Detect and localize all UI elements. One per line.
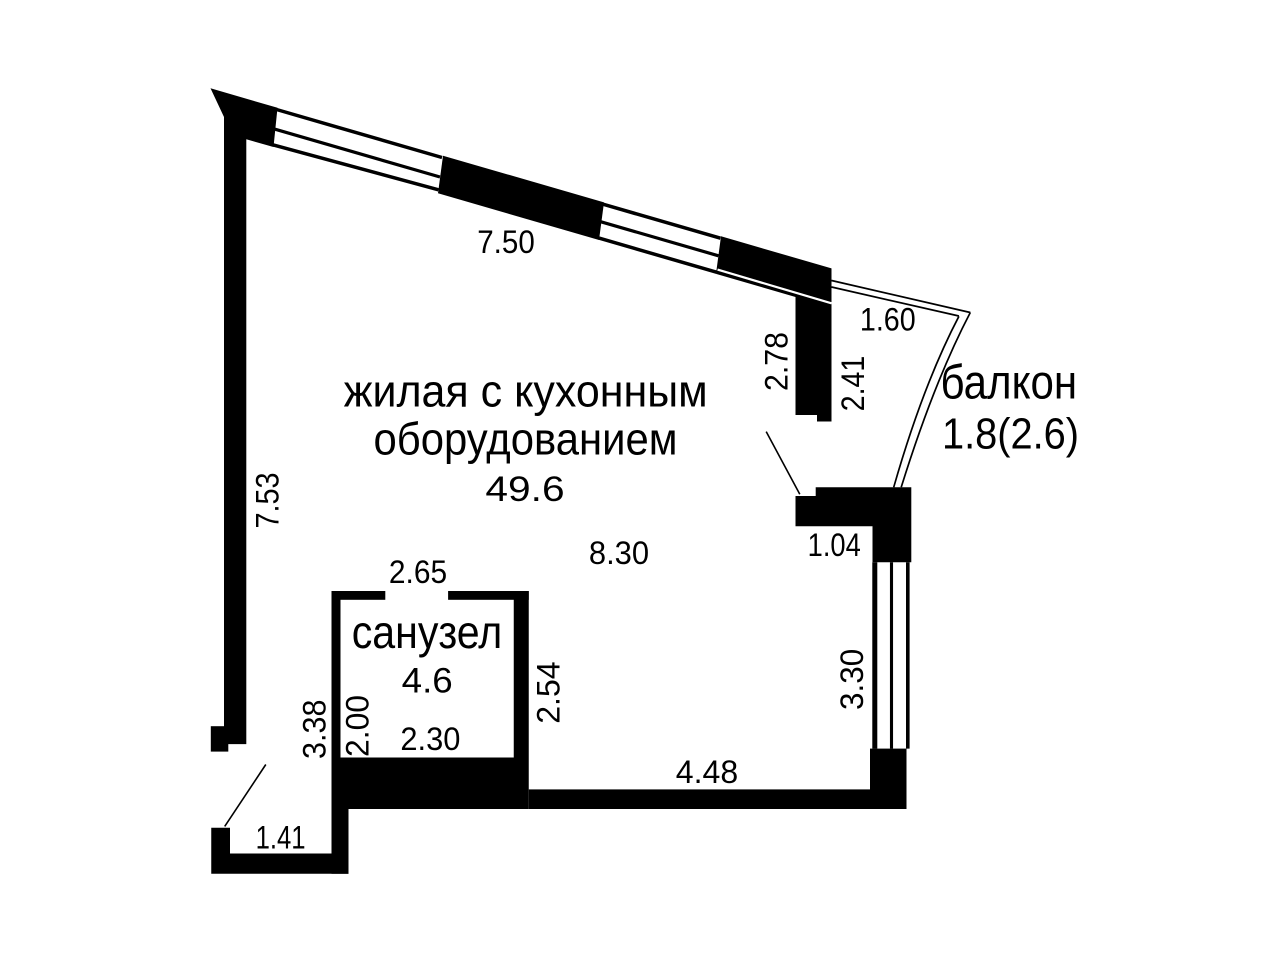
svg-text:1.04: 1.04: [808, 527, 861, 563]
svg-text:7.53: 7.53: [250, 472, 286, 528]
svg-text:2.54: 2.54: [531, 661, 567, 723]
svg-text:2.78: 2.78: [759, 332, 795, 391]
svg-text:2.65: 2.65: [389, 554, 447, 590]
svg-text:2.41: 2.41: [835, 356, 871, 412]
svg-text:4.6: 4.6: [402, 661, 453, 700]
svg-text:балкон: балкон: [941, 357, 1078, 410]
svg-text:жилая с кухонным: жилая с кухонным: [344, 366, 708, 417]
svg-text:8.30: 8.30: [589, 535, 649, 571]
svg-text:2.00: 2.00: [339, 695, 375, 757]
svg-text:3.30: 3.30: [834, 649, 870, 710]
svg-text:1.8(2.6): 1.8(2.6): [942, 409, 1079, 458]
svg-text:3.38: 3.38: [296, 699, 332, 759]
svg-text:1.41: 1.41: [256, 820, 306, 856]
svg-text:7.50: 7.50: [477, 224, 535, 260]
svg-text:4.48: 4.48: [676, 754, 738, 790]
svg-text:оборудованием: оборудованием: [374, 414, 678, 465]
svg-text:санузел: санузел: [352, 606, 503, 658]
svg-text:2.30: 2.30: [400, 721, 460, 757]
svg-text:1.60: 1.60: [860, 301, 916, 337]
svg-text:49.6: 49.6: [485, 470, 564, 509]
